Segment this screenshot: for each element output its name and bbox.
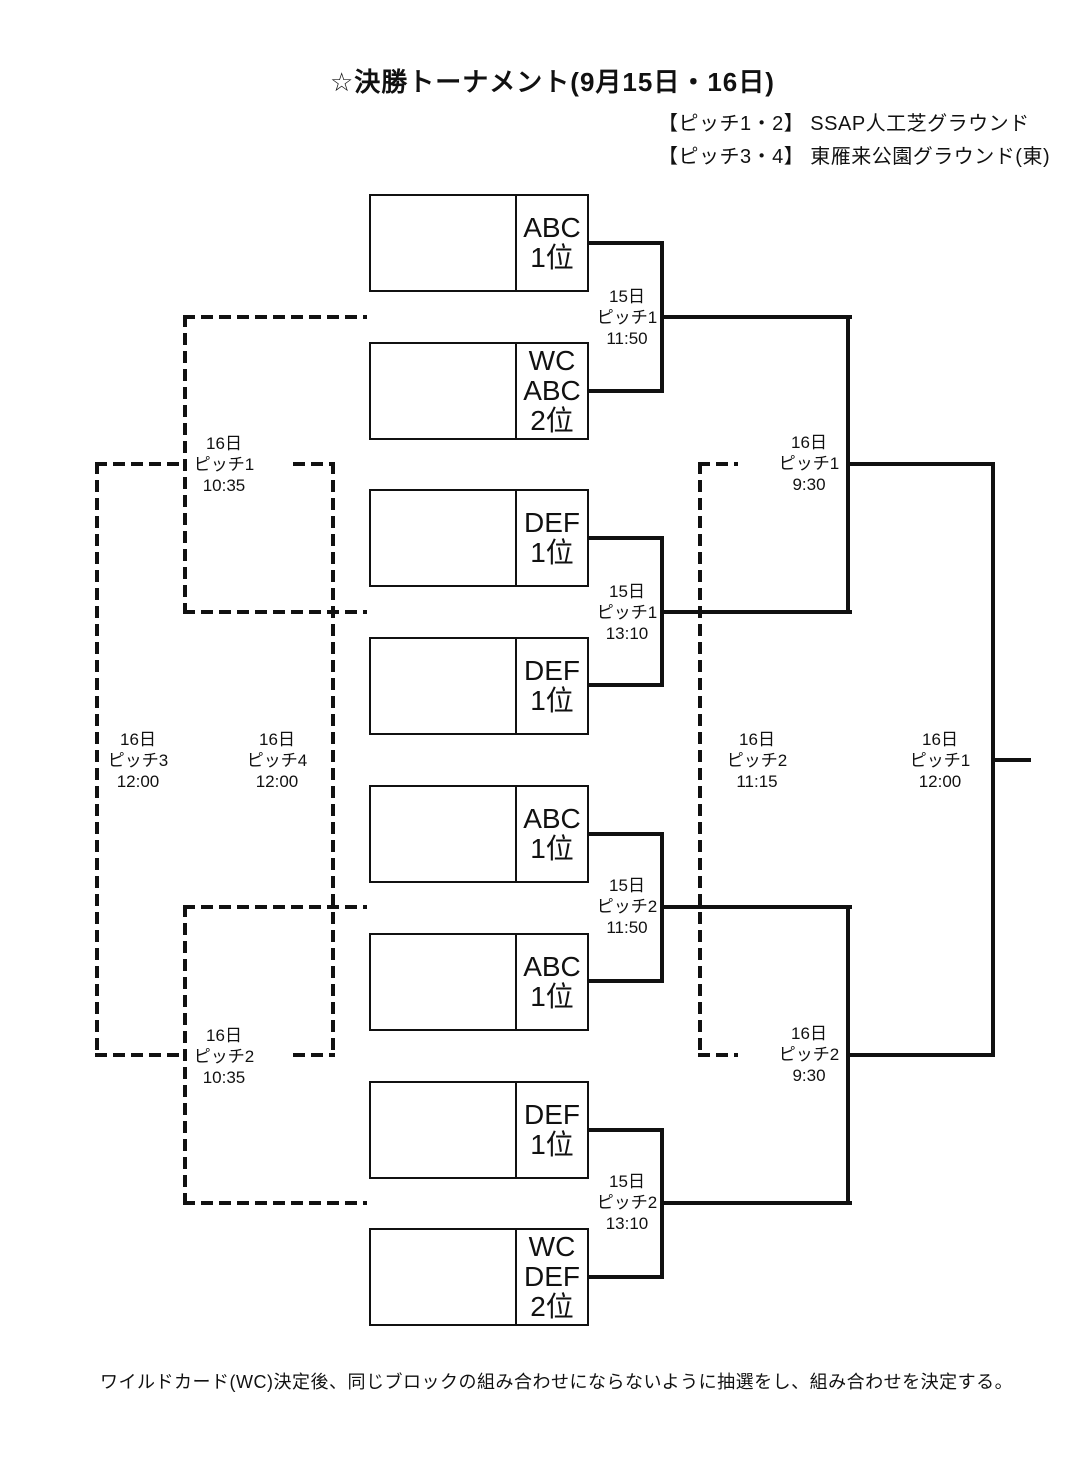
page-title: ☆決勝トーナメント(9月15日・16日) [330,62,775,99]
wildcard-note: ワイルドカード(WC)決定後、同じブロックの組み合わせにならないように抽選をし、… [100,1368,1013,1394]
seed-text: 2位 [530,1292,574,1322]
match-pitch: ピッチ2 [579,1192,675,1213]
seed-text: ABC [523,952,581,982]
match-pitch: ピッチ1 [176,454,272,475]
match-label-qf4: 15日 ピッチ2 13:10 [579,1171,675,1234]
match-label-placement-pitch4: 16日 ピッチ4 12:00 [229,729,325,792]
seed-text: DEF [524,656,580,686]
team-box-5: ABC 1位 [369,785,589,883]
team-box-3: DEF 1位 [369,489,589,587]
match-date: 16日 [761,1023,857,1044]
team-name-cell-empty [371,344,515,438]
solid-line [587,979,664,983]
seed-text: ABC [523,376,581,406]
team-name-cell-empty [371,935,515,1029]
solid-line [587,832,664,836]
team-box-8: WC DEF 2位 [369,1228,589,1326]
match-date: 15日 [579,875,675,896]
solid-line [660,1201,852,1205]
seed-text: 1位 [530,1130,574,1160]
match-date: 16日 [90,729,186,750]
dashed-line [293,1053,335,1057]
team-name-cell-empty [371,1083,515,1177]
match-label-qf1: 15日 ピッチ1 11:50 [579,286,675,349]
team-slot-label: DEF 1位 [515,1083,587,1177]
team-slot-label: ABC 1位 [515,787,587,881]
team-box-6: ABC 1位 [369,933,589,1031]
match-pitch: ピッチ1 [892,750,988,771]
venue-legend-line-2: 【ピッチ3・4】 東雁来公園グラウンド(東) [658,140,1050,169]
match-time: 10:35 [176,475,272,496]
dashed-line [293,462,335,466]
match-date: 16日 [229,729,325,750]
seed-text: 1位 [530,834,574,864]
solid-line [587,389,664,393]
match-time: 11:50 [579,328,675,349]
venue-legend-line-1: 【ピッチ1・2】 SSAP人工芝グラウンド [658,107,1030,136]
solid-line [660,905,852,909]
match-date: 16日 [761,432,857,453]
match-time: 11:50 [579,917,675,938]
dashed-line [331,462,335,1057]
match-time: 12:00 [90,771,186,792]
match-date: 16日 [892,729,988,750]
solid-line [587,683,664,687]
dashed-line [183,1201,367,1205]
team-box-2: WC ABC 2位 [369,342,589,440]
match-pitch: ピッチ2 [709,750,805,771]
solid-line [587,1128,664,1132]
match-pitch: ピッチ2 [176,1046,272,1067]
team-name-cell-empty [371,787,515,881]
dashed-line [698,462,738,466]
seed-text: 1位 [530,538,574,568]
team-slot-label: DEF 1位 [515,491,587,585]
match-label-consolation-upper: 16日 ピッチ1 10:35 [176,433,272,496]
solid-line [846,1053,995,1057]
match-date: 15日 [579,286,675,307]
seed-text: 2位 [530,406,574,436]
match-label-sf2: 16日 ピッチ2 9:30 [761,1023,857,1086]
team-slot-label: WC DEF 2位 [515,1230,587,1324]
match-time: 12:00 [229,771,325,792]
match-time: 12:00 [892,771,988,792]
solid-line [660,610,852,614]
solid-line [846,462,995,466]
match-date: 16日 [176,433,272,454]
team-slot-label: ABC 1位 [515,935,587,1029]
match-label-placement-pitch3: 16日 ピッチ3 12:00 [90,729,186,792]
tournament-bracket-page: ☆決勝トーナメント(9月15日・16日) 【ピッチ1・2】 SSAP人工芝グラウ… [0,0,1080,1460]
match-time: 11:15 [709,771,805,792]
match-label-consolation-lower: 16日 ピッチ2 10:35 [176,1025,272,1088]
match-pitch: ピッチ2 [579,896,675,917]
team-name-cell-empty [371,491,515,585]
match-date: 15日 [579,1171,675,1192]
team-box-7: DEF 1位 [369,1081,589,1179]
match-time: 9:30 [761,474,857,495]
team-slot-label: DEF 1位 [515,639,587,733]
seed-text: ABC [523,804,581,834]
team-name-cell-empty [371,639,515,733]
match-pitch: ピッチ2 [761,1044,857,1065]
match-pitch: ピッチ1 [579,602,675,623]
match-pitch: ピッチ4 [229,750,325,771]
seed-text: 1位 [530,243,574,273]
match-pitch: ピッチ3 [90,750,186,771]
team-box-1: ABC 1位 [369,194,589,292]
match-label-qf3: 15日 ピッチ2 11:50 [579,875,675,938]
match-label-sf1: 16日 ピッチ1 9:30 [761,432,857,495]
seed-text: DEF [524,1100,580,1130]
dashed-line [183,610,367,614]
match-time: 13:10 [579,623,675,644]
team-name-cell-empty [371,1230,515,1324]
match-date: 16日 [176,1025,272,1046]
seed-text: ABC [523,213,581,243]
dashed-line [183,315,367,319]
seed-text: WC [529,1232,576,1262]
solid-line [991,758,1031,762]
match-time: 9:30 [761,1065,857,1086]
dashed-line [698,462,702,1057]
team-box-4: DEF 1位 [369,637,589,735]
match-label-qf2: 15日 ピッチ1 13:10 [579,581,675,644]
seed-text: DEF [524,1262,580,1292]
match-time: 10:35 [176,1067,272,1088]
team-slot-label: ABC 1位 [515,196,587,290]
solid-line [660,315,852,319]
solid-line [587,241,664,245]
solid-line [587,536,664,540]
match-date: 16日 [709,729,805,750]
seed-text: WC [529,346,576,376]
match-pitch: ピッチ1 [761,453,857,474]
team-slot-label: WC ABC 2位 [515,344,587,438]
match-label-final: 16日 ピッチ1 12:00 [892,729,988,792]
match-pitch: ピッチ1 [579,307,675,328]
dashed-line [95,462,187,466]
dashed-line [183,905,367,909]
dashed-line [698,1053,738,1057]
seed-text: DEF [524,508,580,538]
team-name-cell-empty [371,196,515,290]
dashed-line [95,1053,187,1057]
seed-text: 1位 [530,982,574,1012]
seed-text: 1位 [530,686,574,716]
match-label-third-place: 16日 ピッチ2 11:15 [709,729,805,792]
match-time: 13:10 [579,1213,675,1234]
match-date: 15日 [579,581,675,602]
solid-line [587,1275,664,1279]
